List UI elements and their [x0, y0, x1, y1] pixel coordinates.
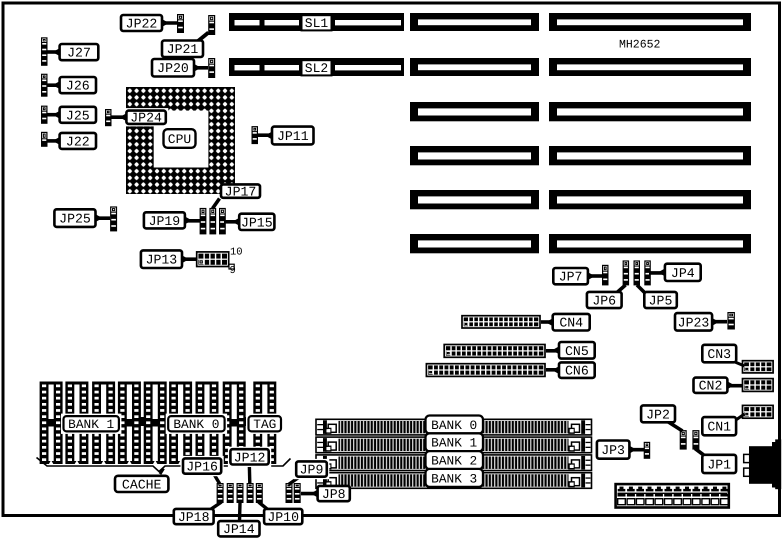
svg-text:J27: J27	[67, 46, 91, 61]
svg-text:BANK 2: BANK 2	[431, 454, 477, 469]
svg-text:JP6: JP6	[592, 294, 616, 309]
svg-text:JP9: JP9	[300, 463, 324, 478]
svg-text:BANK 1: BANK 1	[68, 417, 114, 432]
svg-text:SL1: SL1	[305, 16, 329, 31]
svg-text:J26: J26	[66, 79, 90, 94]
svg-text:JP4: JP4	[671, 266, 695, 281]
svg-text:BANK 0: BANK 0	[431, 418, 477, 433]
svg-text:JP20: JP20	[157, 61, 189, 76]
svg-text:CN4: CN4	[559, 316, 583, 331]
svg-text:JP14: JP14	[223, 522, 255, 537]
svg-text:JP22: JP22	[126, 17, 158, 32]
svg-text:JP15: JP15	[241, 215, 273, 230]
svg-text:J25: J25	[66, 108, 90, 123]
svg-text:BANK 0: BANK 0	[173, 417, 219, 432]
svg-text:JP12: JP12	[234, 450, 266, 465]
svg-text:JP11: JP11	[277, 129, 309, 144]
svg-text:CN5: CN5	[565, 344, 589, 359]
svg-text:10: 10	[230, 247, 243, 259]
svg-text:J22: J22	[66, 134, 90, 149]
svg-text:SL2: SL2	[305, 61, 328, 76]
svg-text:CN2: CN2	[699, 379, 723, 394]
svg-text:MH2652: MH2652	[619, 39, 661, 52]
svg-text:CN6: CN6	[565, 364, 589, 379]
svg-text:JP1: JP1	[707, 457, 731, 472]
svg-text:JP16: JP16	[186, 460, 218, 475]
svg-text:JP5: JP5	[649, 294, 673, 309]
svg-text:JP17: JP17	[225, 185, 257, 200]
svg-text:BANK 3: BANK 3	[431, 471, 477, 486]
svg-text:BANK 1: BANK 1	[431, 436, 477, 451]
svg-text:JP7: JP7	[559, 270, 583, 285]
svg-text:JP24: JP24	[130, 111, 162, 126]
svg-text:JP8: JP8	[322, 487, 346, 502]
svg-text:TAG: TAG	[253, 417, 276, 432]
svg-text:JP2: JP2	[646, 407, 670, 422]
svg-text:JP13: JP13	[146, 253, 178, 268]
svg-text:CPU: CPU	[168, 132, 191, 147]
svg-text:JP18: JP18	[178, 510, 210, 525]
svg-text:JP23: JP23	[678, 315, 710, 330]
svg-text:9: 9	[230, 265, 236, 277]
svg-text:CN1: CN1	[707, 420, 731, 435]
svg-text:CN3: CN3	[707, 347, 731, 362]
svg-text:JP3: JP3	[601, 443, 625, 458]
svg-text:CACHE: CACHE	[122, 477, 162, 492]
svg-text:JP21: JP21	[167, 42, 199, 57]
svg-text:JP10: JP10	[267, 510, 299, 525]
svg-text:JP19: JP19	[149, 214, 181, 229]
svg-text:JP25: JP25	[59, 212, 91, 227]
